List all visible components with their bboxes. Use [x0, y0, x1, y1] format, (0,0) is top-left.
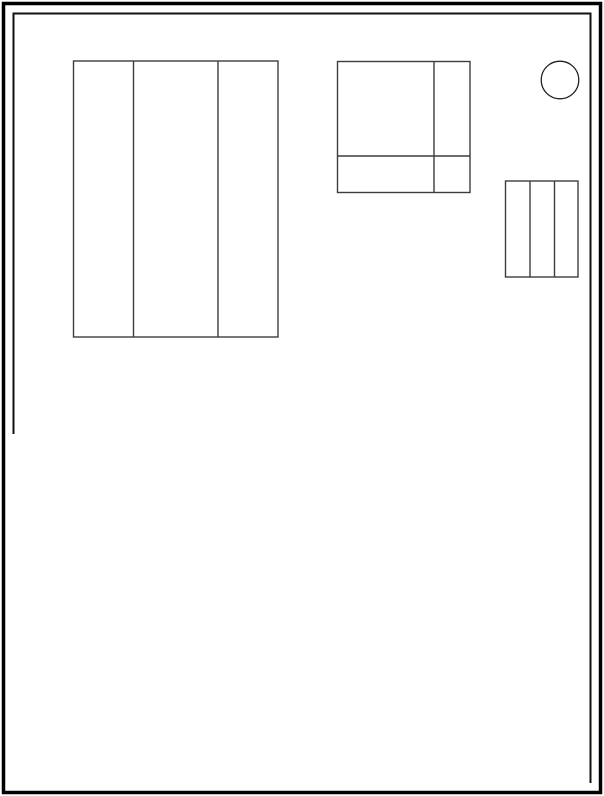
grid-square [338, 62, 471, 193]
three-column-rect-small [506, 181, 579, 277]
circle-shape [541, 61, 579, 99]
three-column-rect-large [74, 61, 279, 337]
drawing-canvas [0, 0, 604, 796]
blank-page [0, 0, 604, 796]
inner-partial-frame [14, 14, 591, 783]
outer-frame [4, 4, 601, 793]
